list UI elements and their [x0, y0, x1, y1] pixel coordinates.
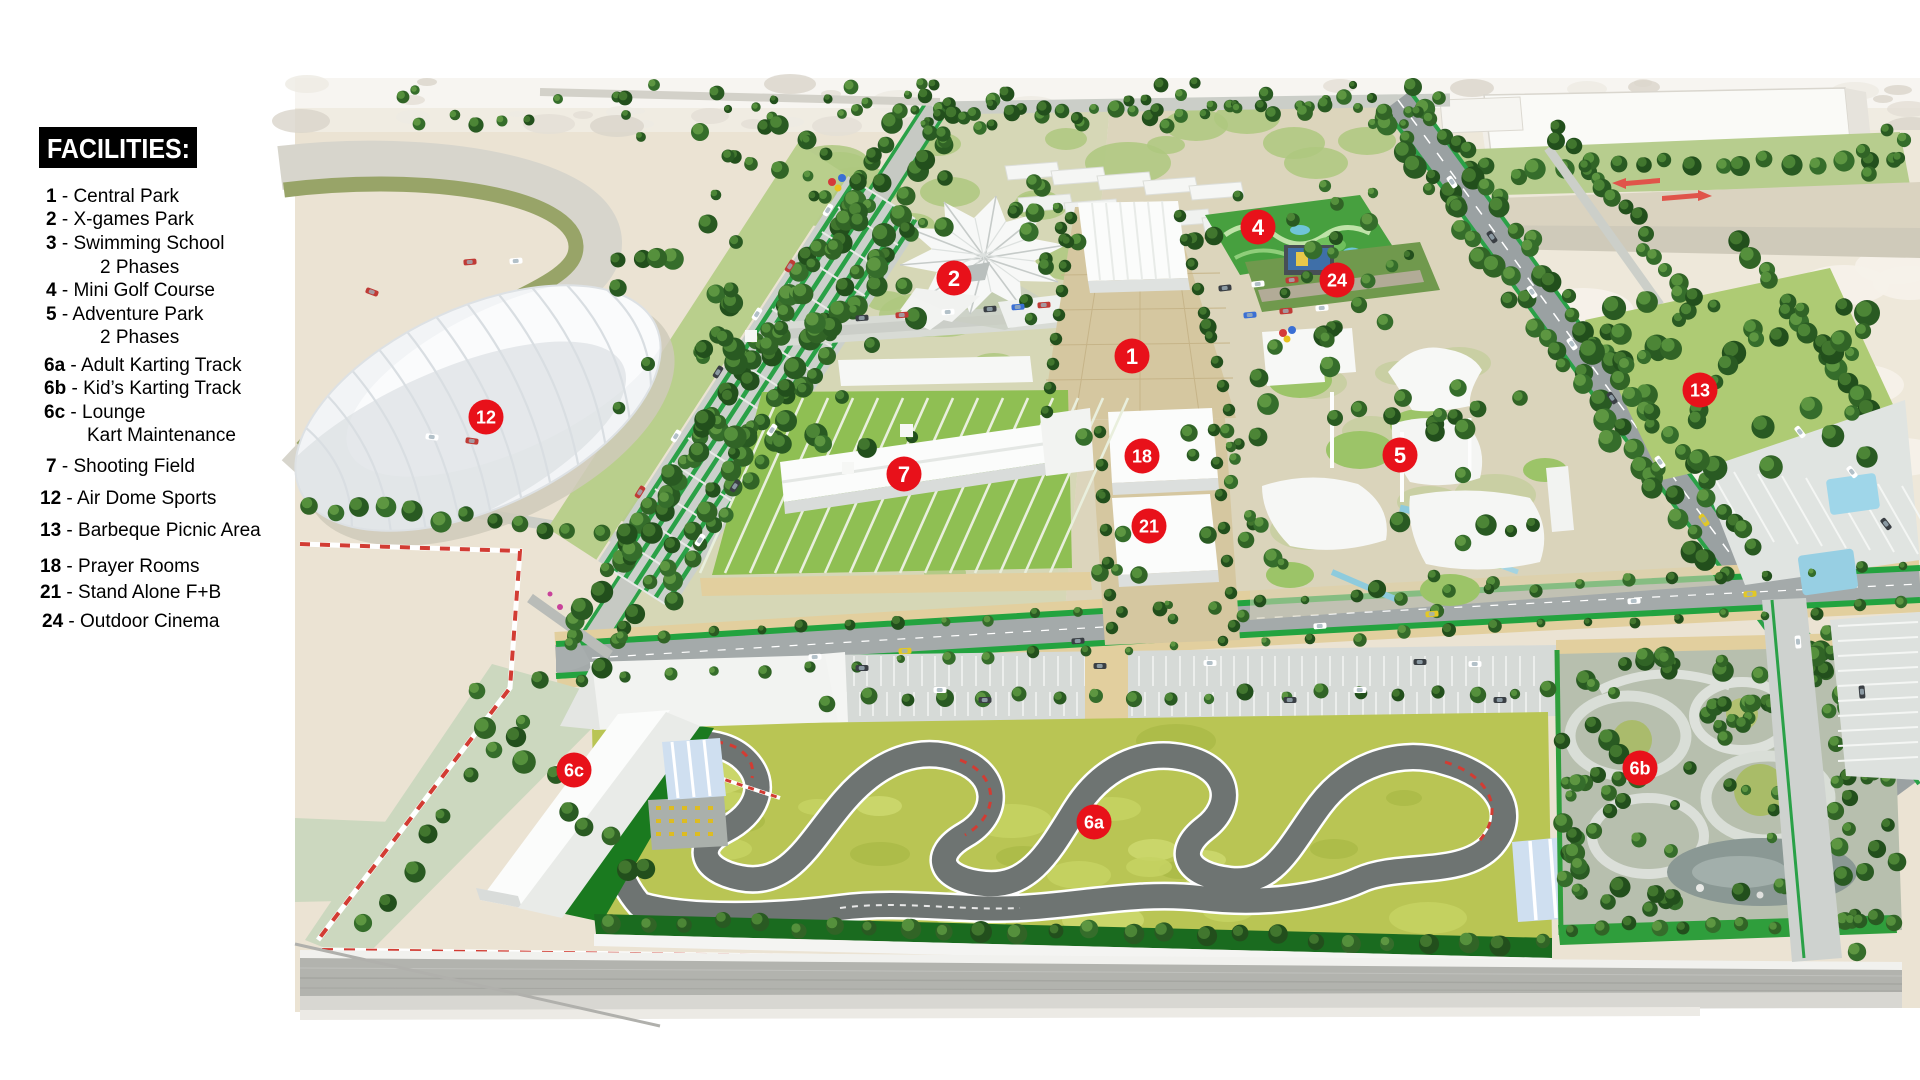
svg-text:Kart Maintenance: Kart Maintenance — [87, 425, 236, 446]
svg-text:2 Phases: 2 Phases — [100, 257, 179, 278]
svg-text:FACILITIES:: FACILITIES: — [47, 133, 190, 164]
svg-text:4 - Mini Golf Course: 4 - Mini Golf Course — [46, 280, 215, 301]
svg-text:6b: 6b — [1629, 758, 1650, 778]
svg-text:2 Phases: 2 Phases — [100, 327, 179, 348]
svg-text:4: 4 — [1252, 215, 1265, 240]
svg-text:5: 5 — [1394, 443, 1406, 468]
svg-text:1: 1 — [1126, 344, 1138, 369]
svg-text:6c: 6c — [564, 760, 584, 780]
svg-text:24 - Outdoor Cinema: 24 - Outdoor Cinema — [42, 611, 220, 632]
svg-text:2: 2 — [948, 266, 960, 291]
svg-text:6c - Lounge: 6c - Lounge — [44, 402, 145, 423]
svg-text:6a - Adult Karting Track: 6a - Adult Karting Track — [44, 355, 242, 376]
svg-text:13: 13 — [1690, 380, 1710, 400]
svg-text:3 - Swimming School: 3 - Swimming School — [46, 233, 224, 254]
svg-text:12 - Air Dome Sports: 12 - Air Dome Sports — [40, 488, 216, 509]
svg-text:13 - Barbeque Picnic Area: 13 - Barbeque Picnic Area — [40, 520, 261, 541]
svg-text:18 - Prayer Rooms: 18 - Prayer Rooms — [40, 556, 199, 577]
svg-text:6b - Kid’s Karting Track: 6b - Kid’s Karting Track — [44, 378, 242, 399]
svg-text:7: 7 — [898, 462, 910, 487]
svg-text:6a: 6a — [1084, 812, 1105, 832]
svg-text:1 - Central Park: 1 - Central Park — [46, 186, 180, 207]
svg-text:21: 21 — [1139, 516, 1159, 536]
svg-text:2 - X-games Park: 2 - X-games Park — [46, 209, 194, 230]
svg-text:24: 24 — [1327, 270, 1347, 290]
svg-text:12: 12 — [476, 407, 496, 427]
svg-text:18: 18 — [1132, 446, 1152, 466]
svg-text:7 - Shooting Field: 7 - Shooting Field — [46, 456, 195, 477]
svg-text:21 - Stand Alone F+B: 21 - Stand Alone F+B — [40, 582, 221, 603]
svg-text:5 - Adventure Park: 5 - Adventure Park — [46, 304, 204, 325]
